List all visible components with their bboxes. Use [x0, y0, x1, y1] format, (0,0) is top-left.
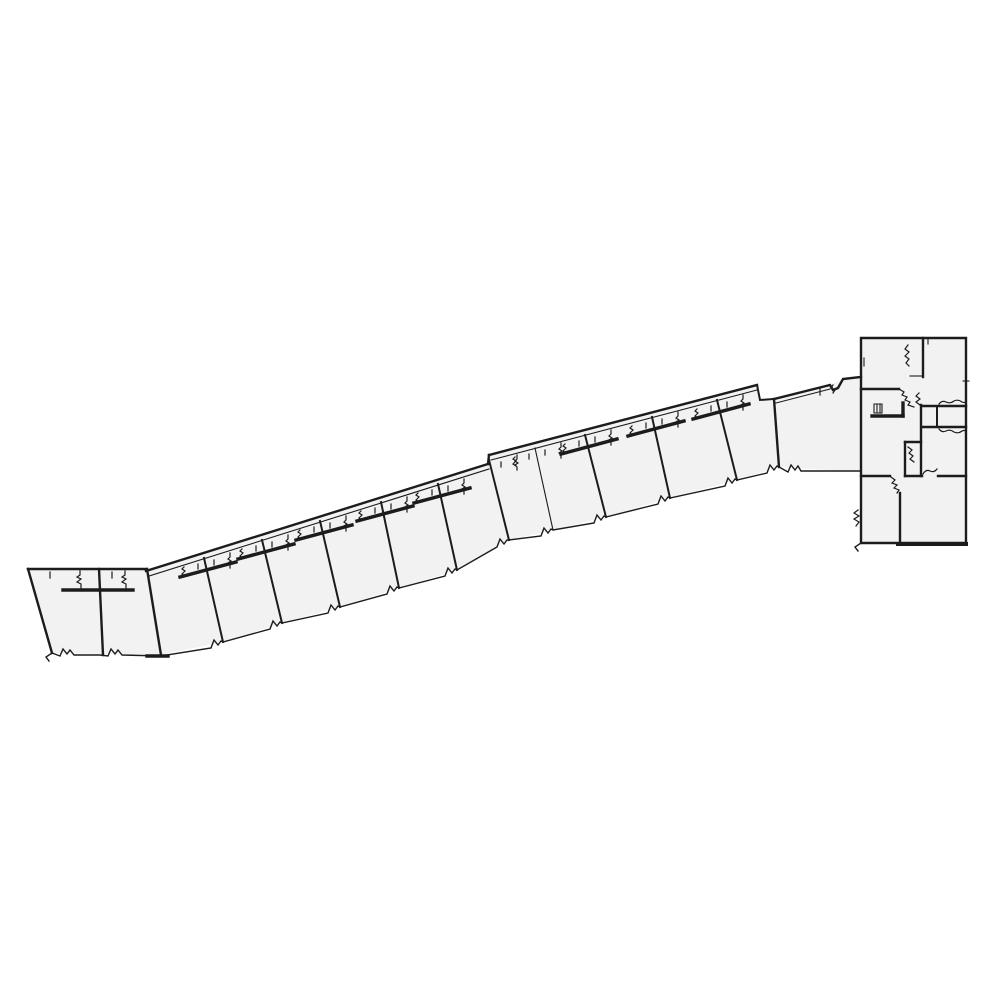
- floor-plan-page: [0, 0, 1000, 1000]
- floor-plan-svg: [0, 0, 1000, 1000]
- door-squiggle: [854, 510, 859, 526]
- unit-fill: [774, 377, 861, 472]
- perimeter-zigzag: [855, 543, 861, 551]
- partition-wall: [757, 385, 774, 400]
- perimeter-zigzag: [46, 653, 52, 661]
- unit-fill: [861, 338, 966, 543]
